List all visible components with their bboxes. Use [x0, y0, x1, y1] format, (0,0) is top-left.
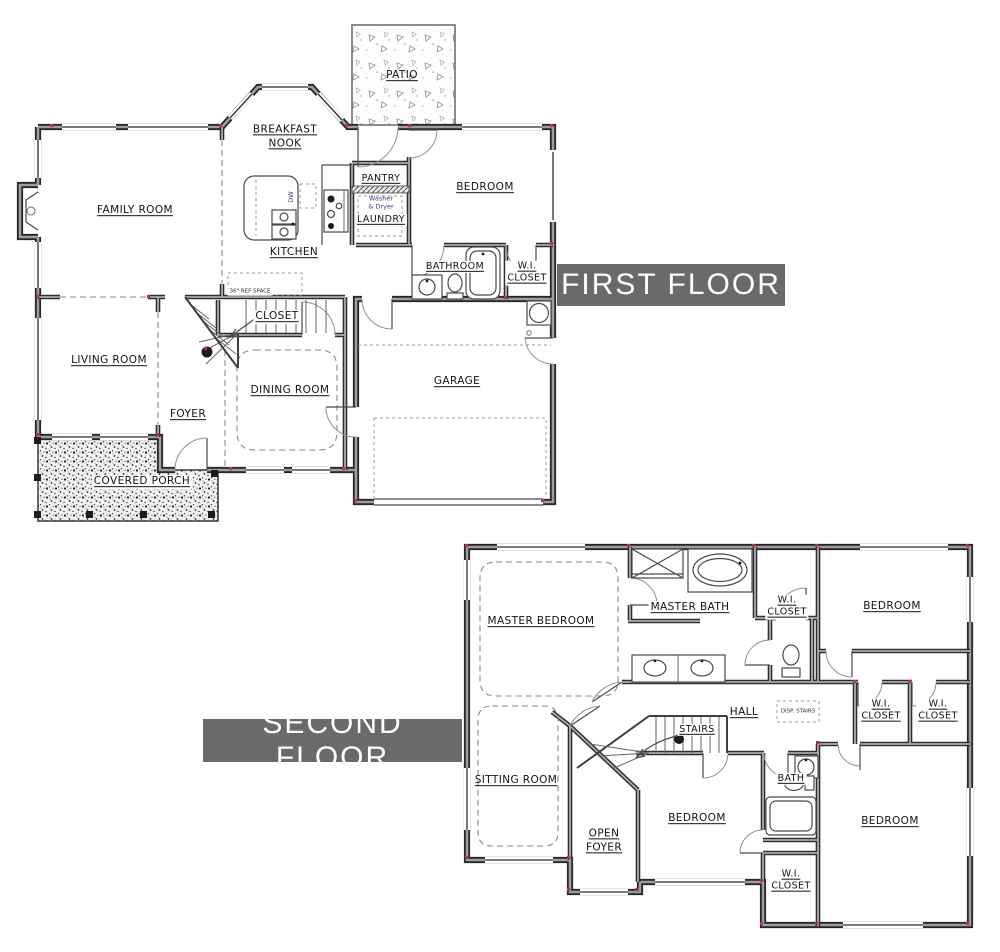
porch-surface [38, 437, 218, 521]
door-bell-mark [527, 331, 531, 335]
water-heater [527, 301, 551, 335]
second-floor-doors [570, 578, 936, 853]
first-floor-plan [20, 25, 553, 521]
second-floor-stairs [577, 716, 727, 768]
bathtub [766, 797, 816, 835]
attic-access-box [777, 701, 819, 722]
second-floor-interior-walls [552, 547, 970, 926]
garage-door [374, 499, 543, 505]
hall-bath-fixtures [766, 756, 818, 835]
second-floor-corner-markers [465, 544, 969, 925]
dining-tray-ceiling [237, 350, 337, 450]
fireplace [26, 192, 38, 230]
first-floor-stairs [185, 297, 326, 368]
range [322, 165, 352, 245]
double-vanity [632, 655, 725, 682]
shower [632, 549, 683, 578]
floor-plan-page: BREAKFAST NOOK PATIO FAMILY ROOM KITCHEN… [0, 0, 1000, 952]
patio-surface [352, 25, 455, 125]
pantry-laundry-divider [352, 186, 409, 193]
toilet-compartment [782, 645, 800, 677]
second-floor-banner: SECOND FLOOR [203, 719, 462, 762]
master-bath-fixtures [632, 549, 800, 682]
garden-tub [688, 549, 752, 592]
first-floor-bathroom-fixtures [412, 247, 500, 299]
first-floor-banner: FIRST FLOOR [557, 264, 785, 306]
toilet [785, 776, 804, 791]
kitchen-island [244, 176, 298, 240]
second-floor-plan [465, 544, 970, 926]
toilet [448, 274, 462, 292]
floor-plan-drawing [0, 0, 1000, 952]
